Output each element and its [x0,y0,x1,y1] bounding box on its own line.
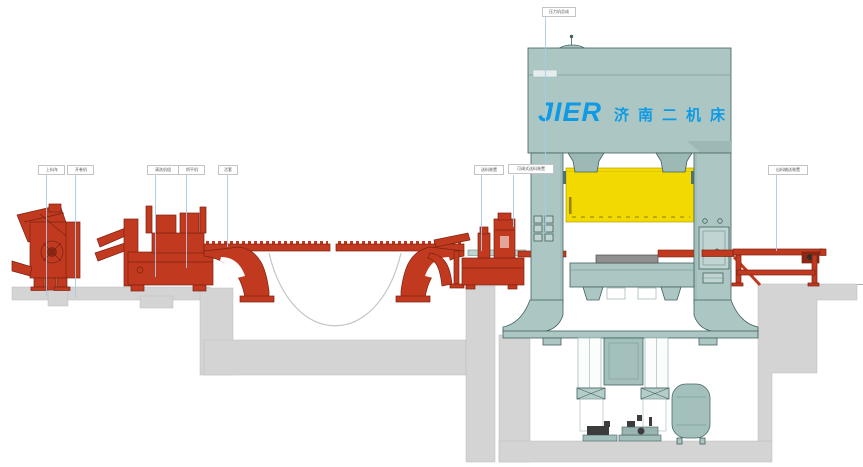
bolster-bed [570,263,694,287]
feeder-pier [466,286,495,462]
callout-label-looper: 活套 [218,165,238,175]
cylinder-2 [200,207,206,233]
leader-line-6 [481,175,482,251]
bed-pedestal-left [583,287,603,300]
callout-text: 上料车 [46,168,58,172]
cushion-cylinder [604,338,643,385]
feeder-base [462,258,524,285]
air-tank [672,384,710,438]
callout-label-feeder: 送料装置 [474,165,504,175]
leader-line-7 [513,175,514,227]
press-pit-bottom-slab [499,441,772,462]
callout-text: 开卷机 [75,168,87,172]
callout-text: 可调式送料装置 [517,167,545,171]
slide-die-area [566,168,694,222]
looper-conveyor [204,243,464,303]
leveler-footing [140,296,173,308]
base-flare-right [694,300,758,332]
callout-label-leveler: 矫平机 [178,165,205,175]
callout-label-adjustable-feeder: 可调式送料装置 [508,164,554,174]
callout-label-washer: 清洗机组 [147,165,179,175]
leader-line-8 [545,17,546,233]
press-underground-equipment [577,338,710,444]
leader-line-3 [155,175,156,277]
leader-line-5 [227,175,228,247]
callout-label-press-assembly: 压力机总成 [542,7,576,17]
leader-line-9 [776,175,777,251]
feeder-cylinder [478,233,490,258]
callout-label-coil-car: 上料车 [38,165,65,175]
sheet-loop-curve [269,253,401,326]
gearbox-1 [156,215,176,233]
press-pit-right-steps [758,284,857,441]
callout-label-decoiler: 开卷机 [67,165,94,175]
cylinder-1 [146,206,152,233]
leader-line-4 [186,175,187,268]
callout-text: 送料装置 [481,168,497,172]
gearbox-2 [180,213,199,233]
callout-text: 压力机总成 [549,10,569,14]
diagram-canvas [0,0,863,467]
press-line-diagram: 上料车 开卷机 清洗机组 矫平机 活套 送料装置 可调式送料装置 压力机总成 出… [0,0,863,467]
conveyor-lower-rail [737,270,815,275]
looper-pit-slab [204,340,466,375]
callout-label-exit-conveyor: 出料输送装置 [768,165,808,175]
logo-chinese-text: 济南二机床 [614,108,734,124]
die-plate [596,255,658,263]
leader-line-1 [46,175,47,296]
leveler-base [128,252,213,285]
callout-text: 活套 [224,168,232,172]
jier-logo: JIER 济南二机床 [538,99,734,125]
logo-latin-text: JIER [538,99,602,125]
hold-down-arm [12,261,32,276]
leader-line-2 [75,175,76,298]
roller-head [152,233,204,253]
bed-pedestal-right [661,287,681,300]
callout-text: 矫平机 [186,168,198,172]
callout-text: 清洗机组 [155,168,171,172]
callout-text: 出料输送装置 [776,168,800,172]
base-beam [503,331,758,338]
base-flare-left [503,300,563,332]
washer-leveler [95,206,213,291]
